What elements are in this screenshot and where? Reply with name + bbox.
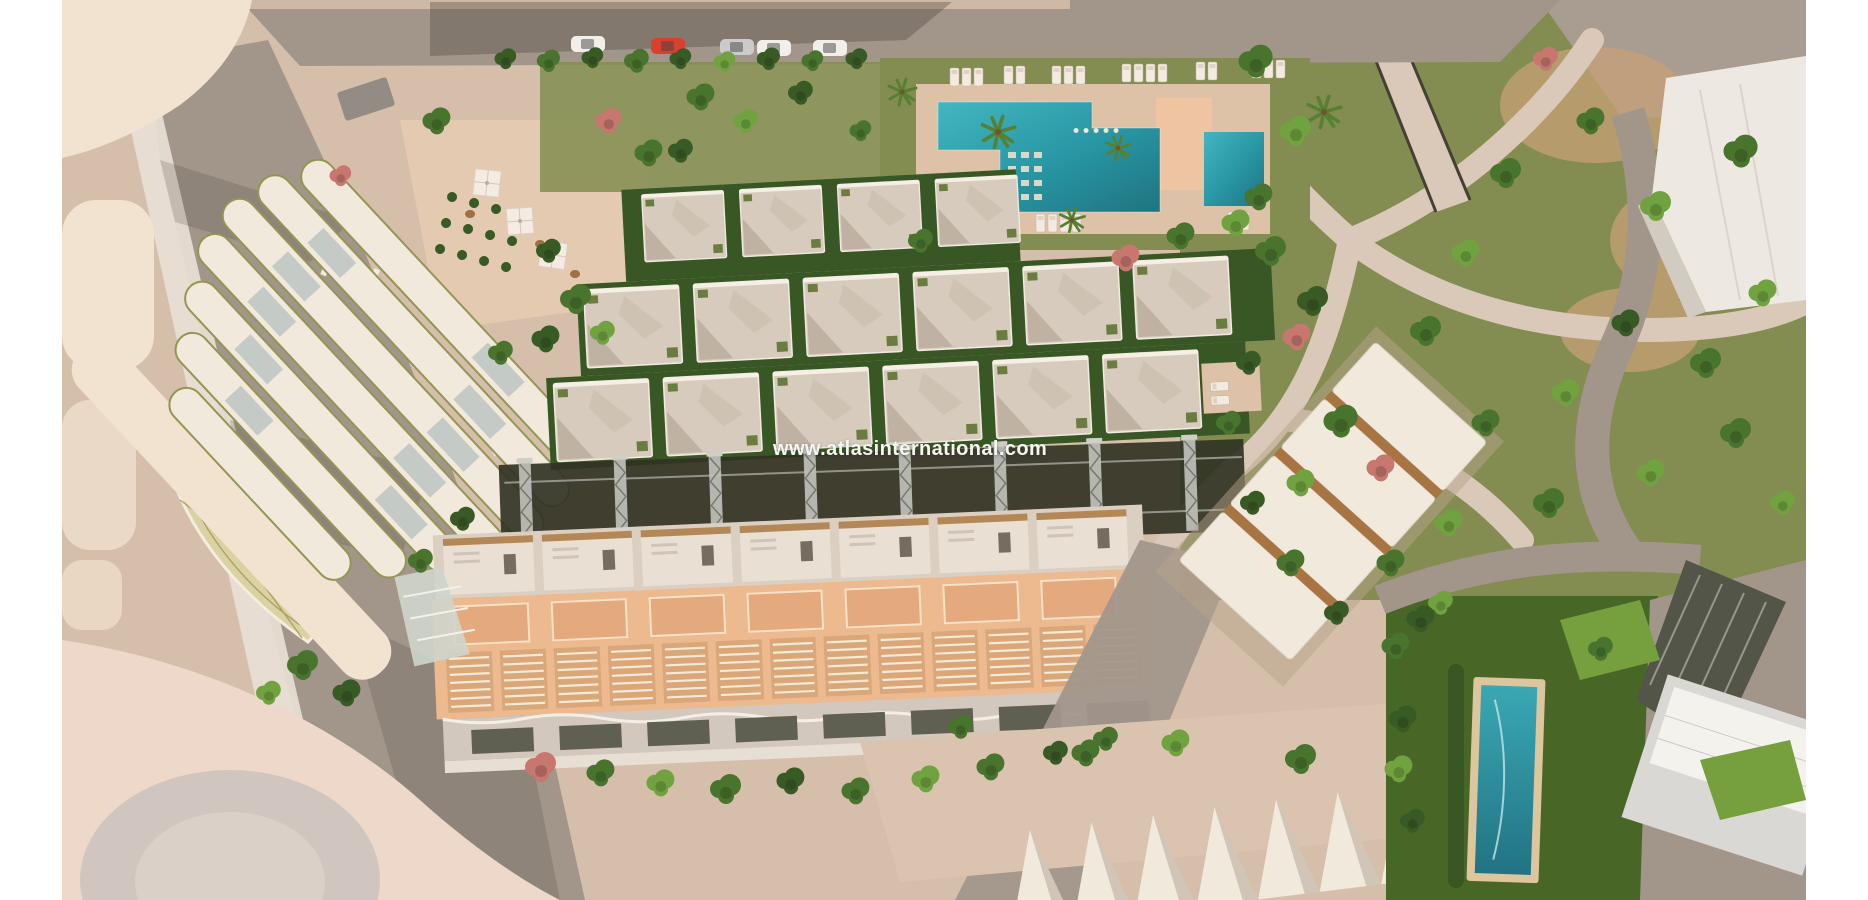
watermark-text: www.atlasinternational.com [773, 438, 1047, 461]
aerial-render-frame: www.atlasinternational.com [0, 0, 1868, 900]
